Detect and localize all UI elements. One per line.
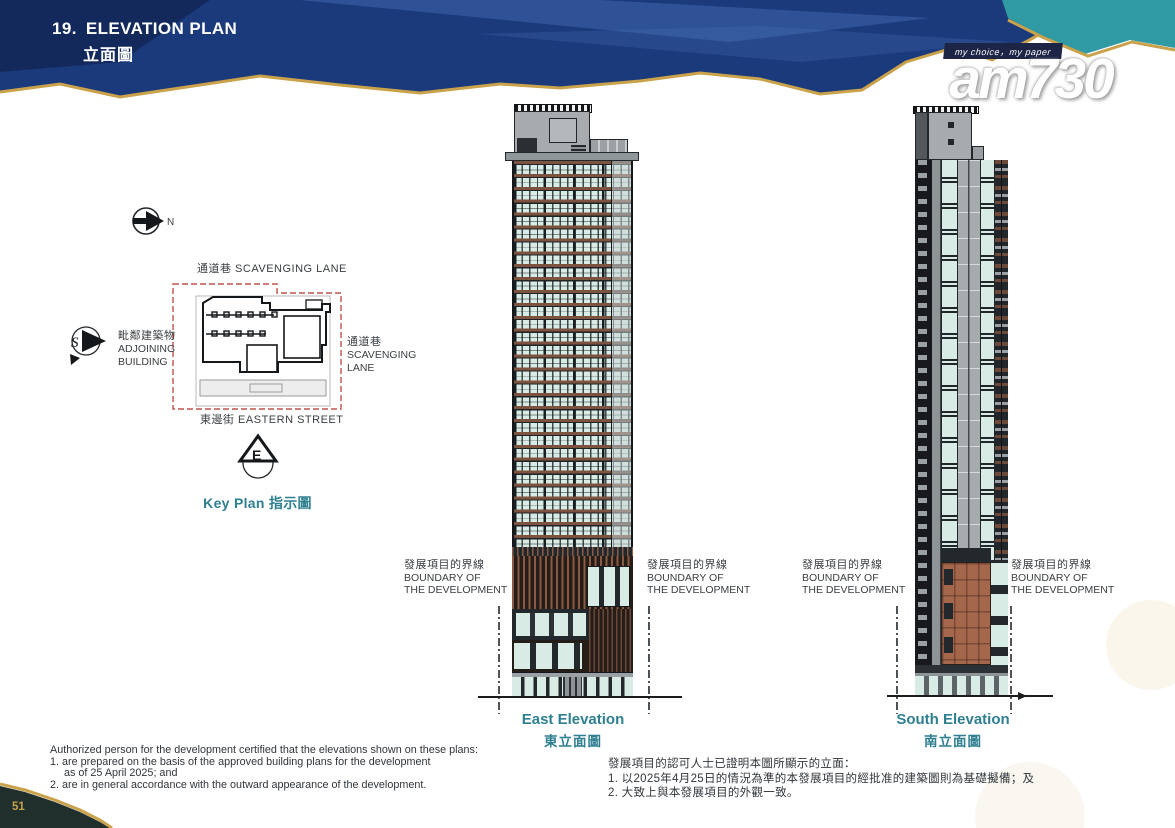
east-podium-fins3 (589, 609, 633, 640)
am730-logo: am730 (928, 46, 1133, 112)
label-eastern-street: 東邊街 EASTERN STREET (200, 414, 343, 427)
east-podium-windows3 (516, 613, 586, 637)
east-storefront (512, 677, 633, 697)
south-ground-line (887, 695, 1053, 697)
label-scavenging-lane-right: 通道巷 SCAVENGING LANE (347, 336, 416, 375)
compass-east-label: E (252, 447, 261, 463)
south-strip-dark (915, 160, 932, 696)
compass-south-label: S (71, 335, 79, 351)
south-base-band (915, 665, 1008, 673)
certification-notes-zh: 發展項目的認可人士已證明本圖所顯示的立面： 1. 以2025年4月25日的情況為… (608, 757, 1034, 801)
compass-south-arrow-icon (82, 330, 106, 352)
east-podium-fin-windows (587, 566, 630, 607)
east-podium-band1 (512, 547, 633, 556)
section-number: 19. (52, 19, 77, 39)
key-plan-caption: Key Plan 指示圖 (150, 493, 365, 513)
east-podium-band3 (512, 609, 633, 640)
south-penthouse-dot2 (948, 139, 954, 145)
east-podium-fins (512, 556, 633, 609)
south-boundary-line-right (1010, 606, 1012, 714)
page-title: 19. ELEVATION PLAN 立面圖 (52, 19, 237, 65)
boundary-label-east-right: 發展項目的界線 BOUNDARY OF THE DEVELOPMENT (647, 559, 750, 597)
south-podium-windows (991, 560, 1008, 665)
south-terracotta-panel (941, 562, 991, 665)
boundary-label-south-left: 發展項目的界線 BOUNDARY OF THE DEVELOPMENT (802, 559, 905, 597)
east-penthouse-window (549, 118, 577, 143)
south-terracotta-slots (944, 569, 953, 658)
south-strip-windows (918, 160, 927, 696)
corner-torn-shape (0, 770, 240, 828)
east-ground-line (478, 696, 682, 698)
east-podium (512, 547, 633, 697)
north-arrow-icon (133, 211, 164, 231)
south-roof-step (972, 146, 984, 160)
boundary-label-east-left: 發展項目的界線 BOUNDARY OF THE DEVELOPMENT (404, 559, 507, 597)
south-boundary-line-left (896, 606, 898, 714)
south-podium-base (915, 665, 1008, 696)
boundary-label-south-right: 發展項目的界線 BOUNDARY OF THE DEVELOPMENT (1011, 559, 1114, 597)
section-title-en: ELEVATION PLAN (86, 19, 237, 39)
east-tower-side-strip (611, 161, 631, 547)
east-podium-band4 (512, 640, 633, 672)
label-adjoining-building: 毗鄰建築物 ADJOINING BUILDING (118, 330, 176, 369)
footprint-annex (306, 300, 322, 309)
east-entrance-door (563, 677, 582, 697)
label-scavenging-lane-top: 通道巷 SCAVENGING LANE (197, 263, 347, 276)
south-strip-pilaster (932, 160, 941, 696)
east-elevation-caption: East Elevation 東立面圖 (498, 711, 648, 750)
page-number: 51 (12, 801, 25, 813)
east-podium-fins4 (589, 640, 633, 672)
south-ground-arrow-icon (1018, 692, 1027, 700)
decor-blob-right (1106, 600, 1175, 690)
south-elevation-caption: South Elevation 南立面圖 (878, 711, 1028, 750)
compass-south-fletch-icon (70, 354, 80, 365)
south-storefront (915, 676, 1008, 696)
east-penthouse (514, 111, 590, 158)
east-podium-windows4 (514, 643, 582, 669)
east-tower-facade (512, 161, 633, 547)
brochure-page: 19. ELEVATION PLAN 立面圖 my choice，my pape… (0, 0, 1175, 828)
section-title-zh: 立面圖 (83, 41, 237, 65)
footprint-laneway (200, 380, 326, 396)
south-penthouse-left (915, 112, 928, 160)
am730-watermark: my choice，my paper am730 (928, 36, 1133, 126)
south-podium-band (941, 548, 991, 562)
east-roof-slab (505, 152, 639, 161)
north-label: N (167, 217, 174, 228)
